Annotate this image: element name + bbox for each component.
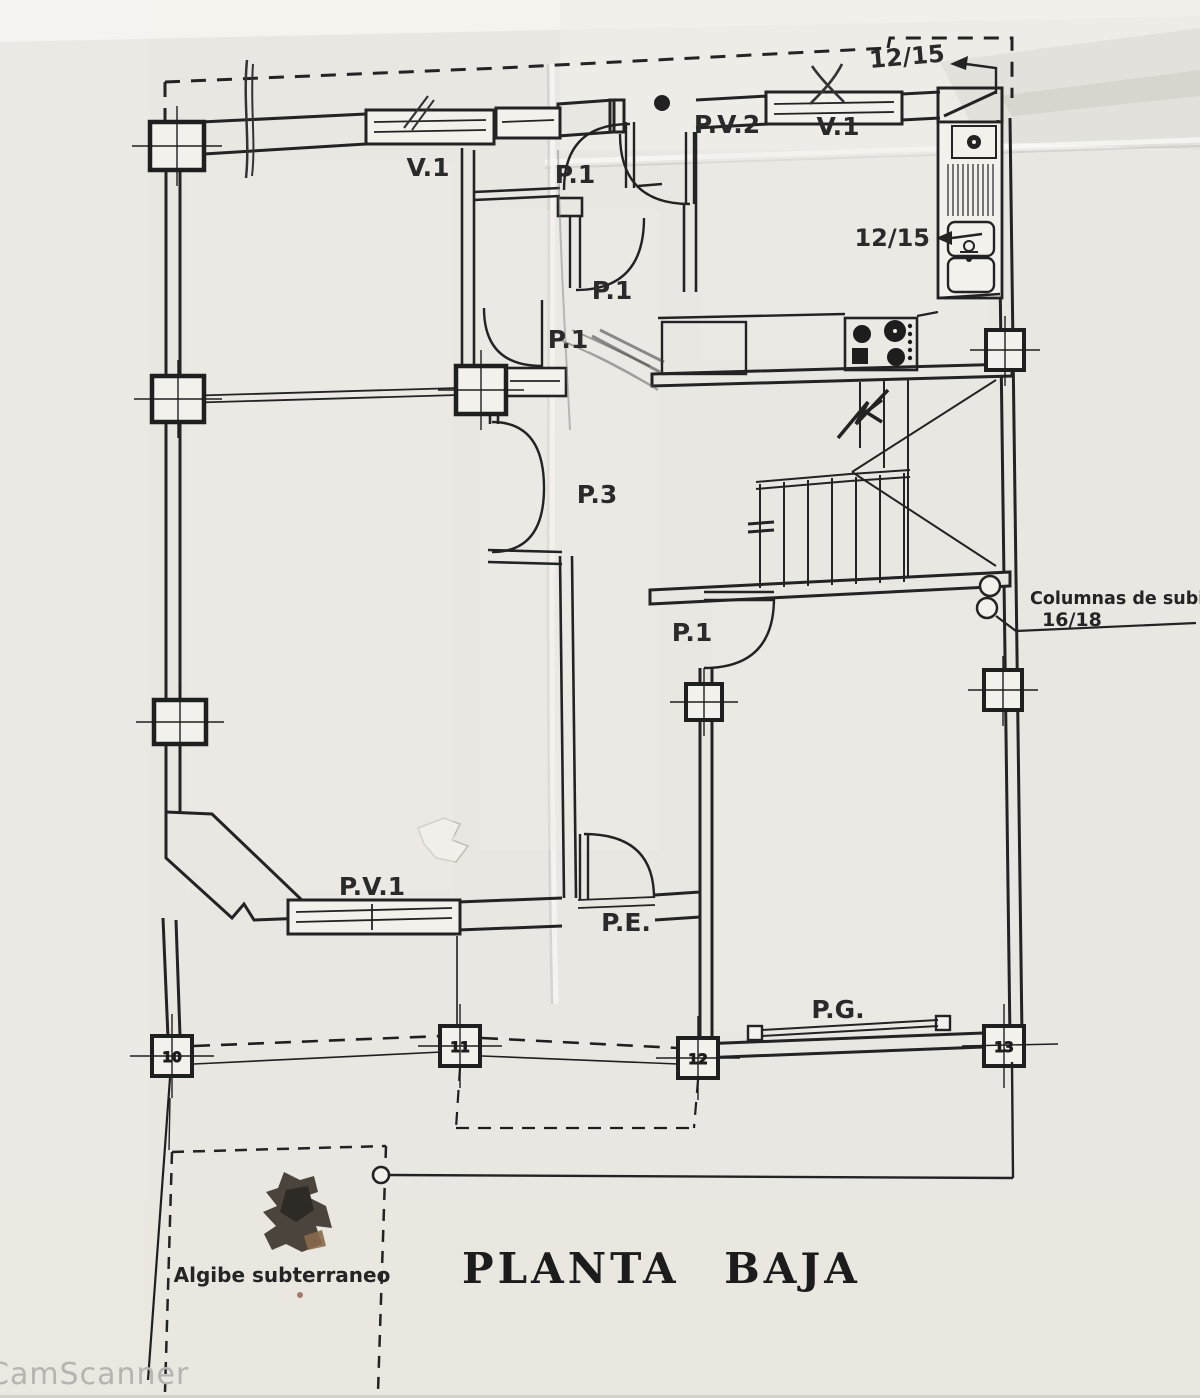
window-small-top bbox=[496, 108, 560, 138]
label-door-p1-mid: P.1 bbox=[592, 276, 633, 305]
cistern-pipe-vertical bbox=[1012, 1062, 1013, 1178]
grid-label-12: 12 bbox=[688, 1052, 707, 1068]
window-interior-band bbox=[504, 368, 566, 396]
page-title: PLANTA BAJA bbox=[462, 1244, 861, 1293]
label-door-p1-hall: P.1 bbox=[672, 618, 713, 647]
label-door-p3: P.3 bbox=[577, 480, 618, 509]
label-door-p1-low: P.1 bbox=[548, 325, 589, 354]
cistern-label: Algibe subterraneo bbox=[174, 1263, 391, 1287]
camscanner-watermark: CamScanner bbox=[0, 1357, 189, 1392]
sink-unit bbox=[938, 122, 1002, 298]
columns-note-label: Columnas de subida bbox=[1030, 589, 1200, 609]
label-door-pv1: P.V.1 bbox=[339, 872, 405, 901]
label-door-p1-top: P.1 bbox=[555, 160, 596, 189]
cistern-connection-point bbox=[373, 1167, 389, 1183]
floorplan-drawing: 10 11 12 13 bbox=[0, 0, 1200, 1398]
grid-label-10: 10 bbox=[162, 1050, 182, 1066]
label-door-garage: P.G. bbox=[811, 995, 864, 1024]
riser-column-circle bbox=[980, 576, 1000, 596]
grid-label-13: 13 bbox=[994, 1040, 1013, 1056]
window-v1-living bbox=[366, 110, 494, 144]
scanned-floorplan-page: 10 11 12 13 bbox=[0, 0, 1200, 1398]
label-window-living: V.1 bbox=[406, 153, 449, 182]
label-door-pv2: P.V.2 bbox=[694, 110, 760, 139]
grid-label-11: 11 bbox=[450, 1040, 469, 1056]
sink-ref-label: 12/15 bbox=[854, 224, 930, 252]
columns-size-label: 16/18 bbox=[1042, 609, 1102, 631]
label-window-kitchen: V.1 bbox=[816, 112, 859, 141]
label-door-entry: P.E. bbox=[601, 908, 651, 937]
riser-column-circle bbox=[977, 598, 997, 618]
window-pv1 bbox=[288, 900, 460, 934]
